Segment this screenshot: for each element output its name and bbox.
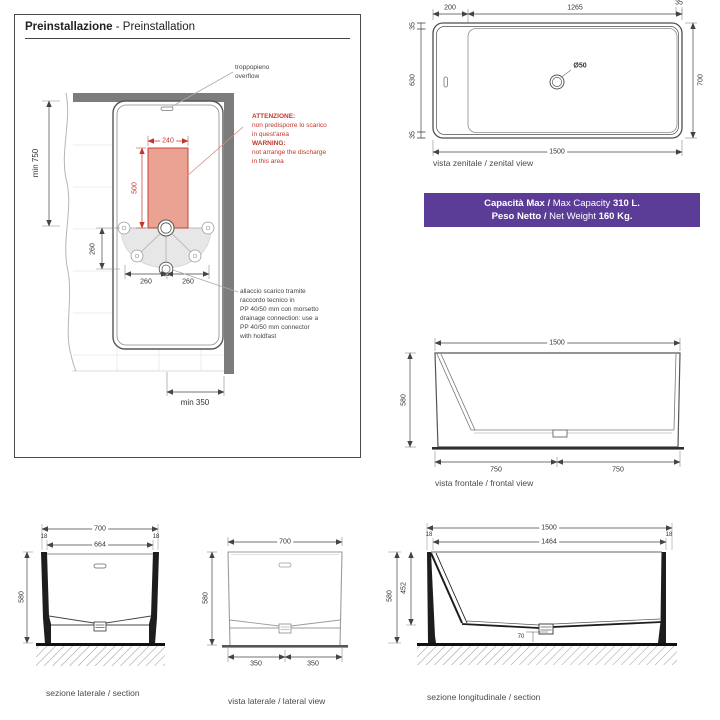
warning-note: ATTENZIONE: non predisporre lo scarico i… [252,112,354,166]
preinstallation-drawing [15,15,360,457]
base-plinth [432,447,684,450]
section-longitudinal-drawing [386,518,720,720]
dim-width: 700 [698,74,705,86]
dim-inner: 664 [92,542,108,549]
dim-wall-left: 18 [41,534,48,540]
floor-line [417,643,677,646]
weight-line: Peso Netto / Net Weight 160 Kg. [492,210,633,223]
dim-inner: 1464 [539,539,559,546]
wall-right [224,93,234,374]
section-longitudinal-panel: 1500 18 1464 18 580 452 70 sezione longi… [386,518,720,720]
dim-feet-right: 260 [182,279,194,286]
dim-drain-height: 70 [518,634,525,640]
caption-longitudinal: sezione longitudinale / section [427,692,540,702]
dim-rim-top-right: 35 [675,0,683,7]
wall-section-left [427,552,436,643]
drain-trap [539,624,553,634]
dim-basin-width: 630 [410,74,417,86]
dim-zone-width: 240 [160,138,176,145]
lateral-view-panel: 700 580 350 350 vista laterale / lateral… [200,520,385,720]
preinstallation-panel: Preinstallazione - Preinstallation [14,14,361,458]
dim-height: 580 [19,591,26,603]
wall-section-right [149,552,159,644]
zenital-view-panel: 200 1265 35 35 630 35 700 1500 Ø50 vista… [400,0,720,185]
dim-depth: 452 [401,582,408,594]
dim-right: 750 [612,467,624,474]
lateral-drawing [200,520,385,720]
dim-min-350: min 350 [179,399,211,407]
ground-hatch [36,646,165,666]
dim-length: 1500 [547,340,567,347]
caption-frontal: vista frontale / frontal view [435,478,533,488]
dim-wall-left: 18 [426,532,433,538]
drain [158,220,174,236]
wall-section-right [658,552,666,643]
ground-hatch [417,646,677,665]
dim-drain-offset: 260 [90,243,97,255]
dim-width: 700 [277,539,293,546]
broken-wall-line [64,93,76,371]
capacity-line: Capacità Max / Max Capacity 310 L. [484,197,640,210]
drain-trap [279,624,291,633]
overflow-slot [94,564,106,568]
capacity-banner: Capacità Max / Max Capacity 310 L. Peso … [424,193,700,227]
dim-height: 580 [203,592,210,604]
floor-line [36,643,165,646]
dim-min-750: min 750 [32,149,40,177]
dim-height: 580 [387,590,394,602]
dim-height: 580 [401,394,408,406]
floor-line [222,645,348,648]
restricted-zone [148,148,188,228]
dim-feet-left: 260 [140,279,152,286]
wall-section-left [41,552,51,644]
dim-rim-bottom: 35 [410,131,417,139]
dim-left: 350 [250,661,262,668]
dim-length: 1500 [547,149,567,156]
spec-sheet-page: Preinstallazione - Preinstallation [0,0,720,720]
caption-zenital: vista zenitale / zenital view [433,158,533,168]
dim-ledge: 200 [444,5,456,12]
drain-note: allaccio scarico tramite raccordo tecnic… [240,287,335,341]
caption-lateral: vista laterale / lateral view [228,696,325,706]
bottom-right-shell [553,622,662,627]
dim-length: 1500 [539,525,559,532]
dim-drain-diameter: Ø50 [573,63,586,70]
frontal-view-panel: 1500 580 750 750 vista frontale / fronta… [400,330,720,500]
dim-left: 750 [490,467,502,474]
dim-rim-top: 35 [410,22,417,30]
section-lateral-panel: 700 18 664 18 580 sezione laterale / sec… [20,520,205,720]
dim-wall-right: 18 [666,532,673,538]
drain-trap [94,622,106,631]
dim-zone-height: 500 [132,182,139,194]
caption-section-lateral: sezione laterale / section [46,688,140,698]
dim-basin-length: 1265 [567,5,583,12]
frontal-drawing [400,330,720,500]
dim-wall-right: 18 [153,534,160,540]
dim-width: 700 [92,526,108,533]
drain [553,430,567,437]
dim-right: 350 [307,661,319,668]
backrest-slope [431,553,462,623]
overflow-label: troppopieno overflow [235,63,269,81]
